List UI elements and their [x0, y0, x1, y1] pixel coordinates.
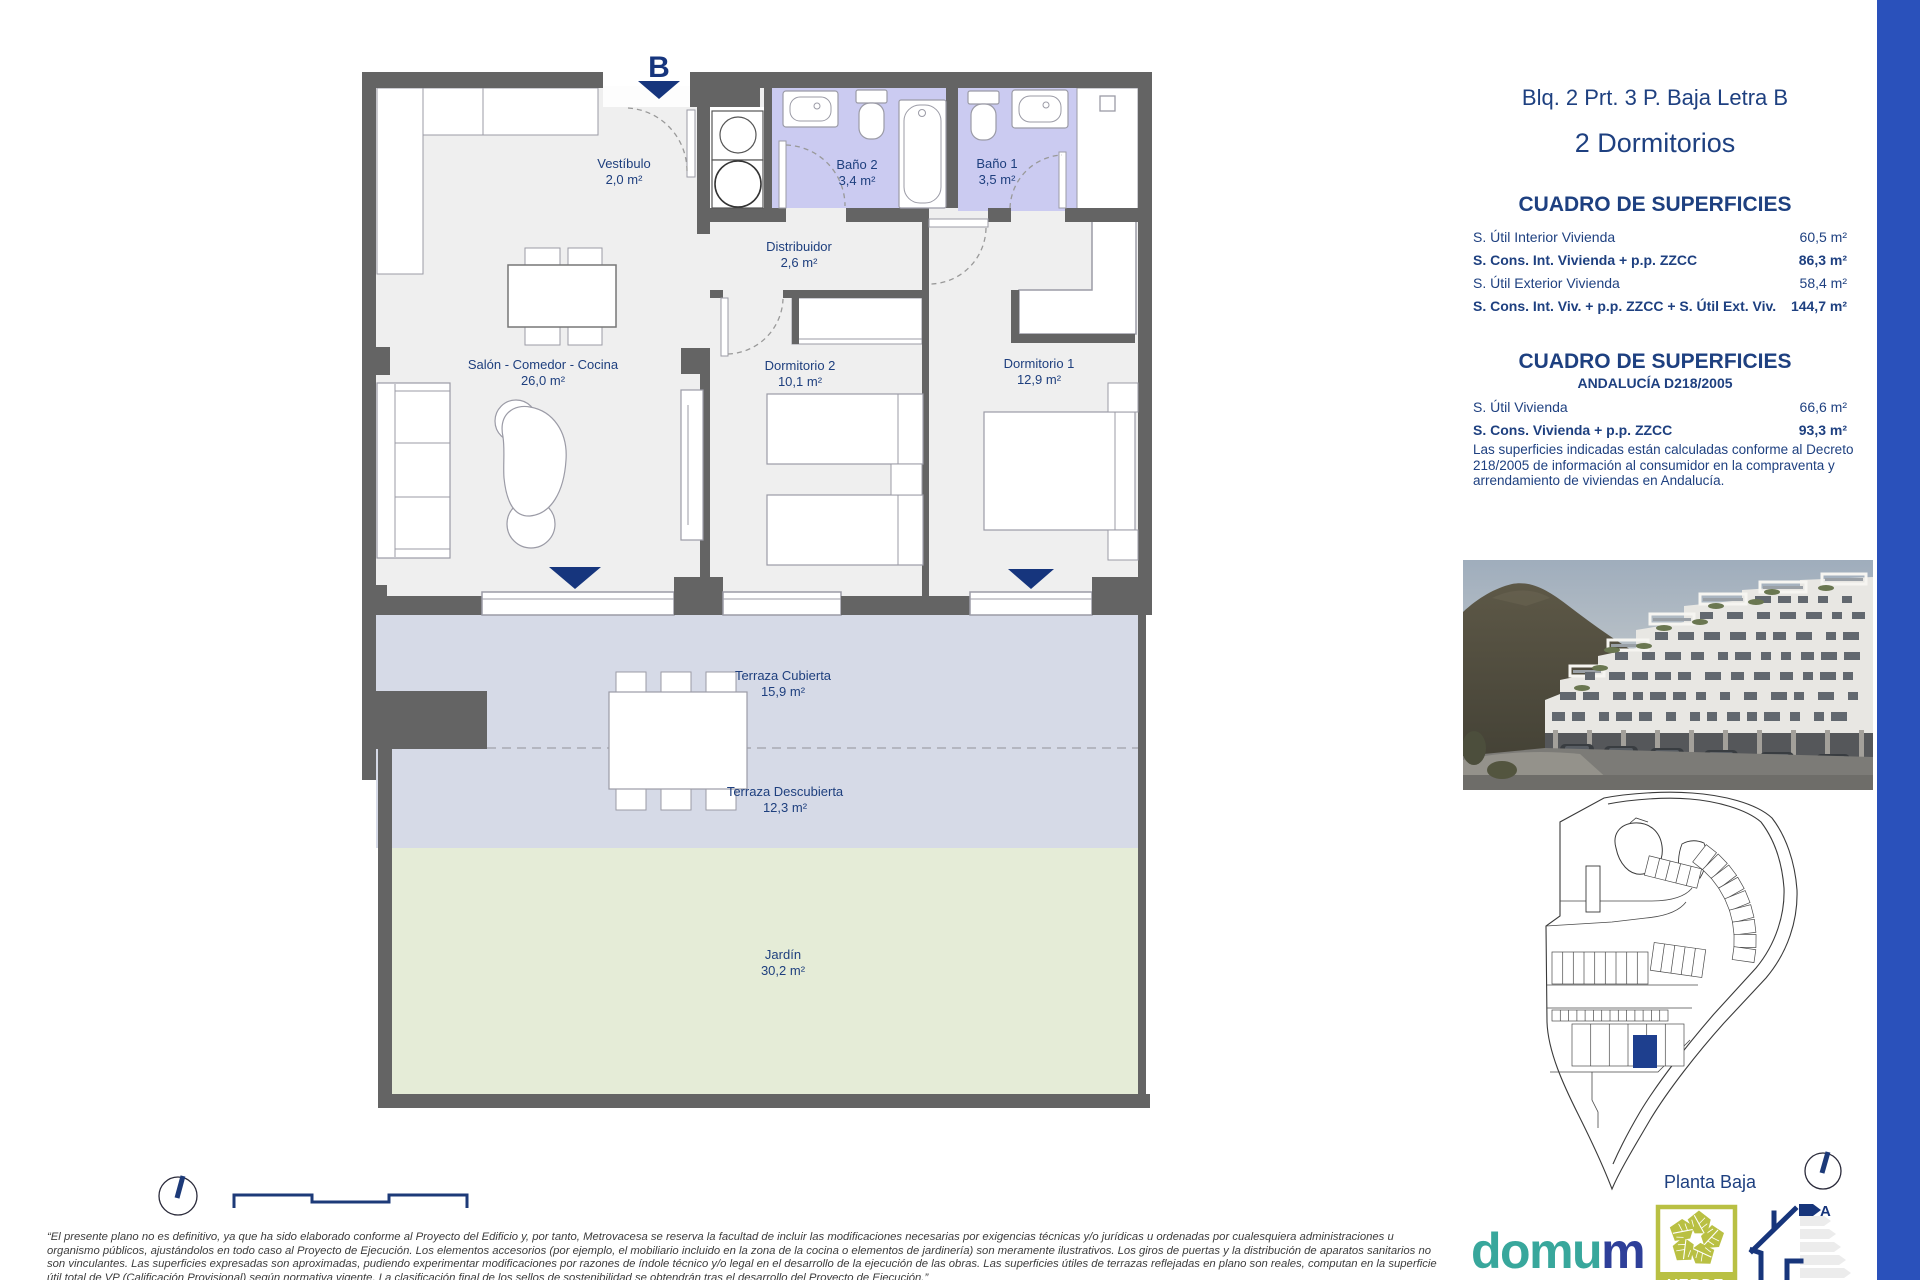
svg-text:VERDE: VERDE [1668, 1276, 1725, 1280]
svg-text:30,2 m²: 30,2 m² [761, 963, 806, 978]
svg-text:2,6 m²: 2,6 m² [781, 255, 819, 270]
svg-text:Baño 2: Baño 2 [836, 157, 877, 172]
svg-text:Distribuidor: Distribuidor [766, 239, 832, 254]
svg-text:B: B [648, 51, 670, 84]
svg-text:Terraza Descubierta: Terraza Descubierta [727, 784, 844, 799]
svg-text:Jardín: Jardín [765, 947, 801, 962]
svg-text:26,0 m²: 26,0 m² [521, 373, 566, 388]
svg-text:A: A [1820, 1203, 1831, 1220]
svg-text:Vestíbulo: Vestíbulo [597, 156, 651, 171]
svg-text:10,1 m²: 10,1 m² [778, 374, 823, 389]
svg-text:2,0 m²: 2,0 m² [606, 172, 644, 187]
svg-text:15,9 m²: 15,9 m² [761, 684, 806, 699]
svg-text:Dormitorio 1: Dormitorio 1 [1004, 356, 1075, 371]
svg-text:Baño 1: Baño 1 [976, 156, 1017, 171]
svg-text:Dormitorio 2: Dormitorio 2 [765, 358, 836, 373]
svg-text:3,4 m²: 3,4 m² [839, 173, 877, 188]
svg-text:Salón - Comedor - Cocina: Salón - Comedor - Cocina [468, 357, 619, 372]
svg-text:3,5 m²: 3,5 m² [979, 172, 1017, 187]
svg-text:12,3 m²: 12,3 m² [763, 800, 808, 815]
svg-text:12,9 m²: 12,9 m² [1017, 372, 1062, 387]
svg-text:Terraza Cubierta: Terraza Cubierta [735, 668, 832, 683]
